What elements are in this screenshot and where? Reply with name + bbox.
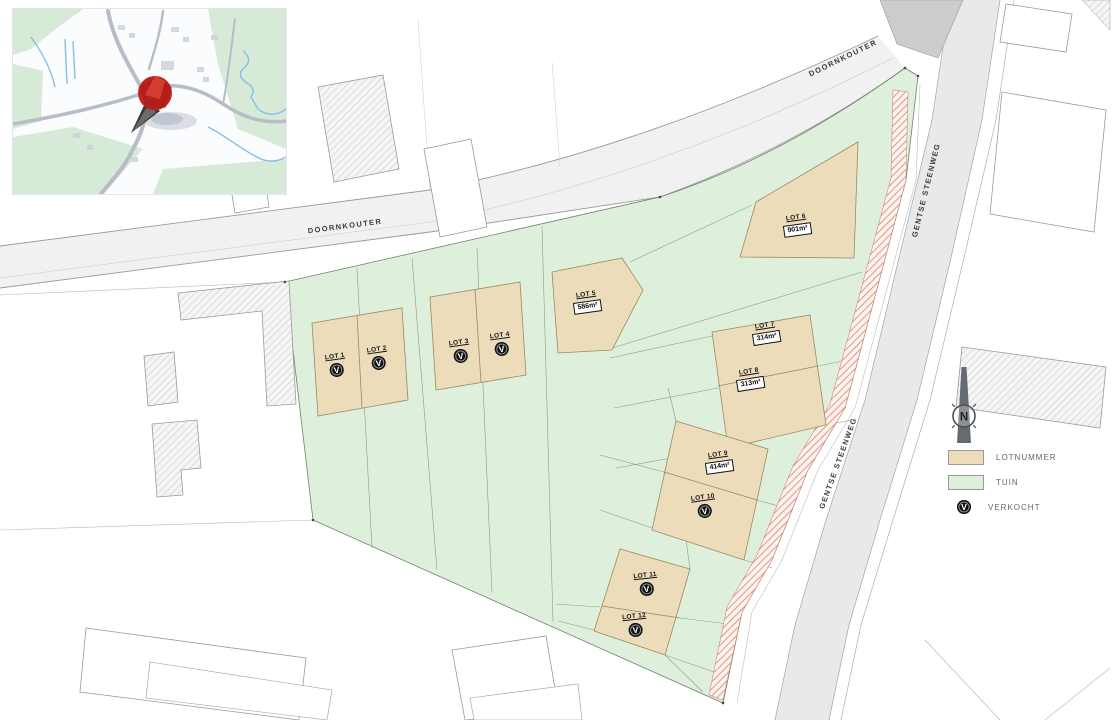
lot-5-label: LOT 5 586m² bbox=[571, 289, 602, 315]
lot-10-label: LOT 10 V bbox=[691, 492, 718, 519]
lot-name: LOT 11 bbox=[633, 571, 657, 580]
lot-1-label: LOT 1 V bbox=[324, 352, 347, 379]
pin-shadow bbox=[151, 113, 183, 125]
north-arrow: N bbox=[938, 363, 990, 451]
lot-name: LOT 7 bbox=[754, 321, 775, 331]
site-plan-drawing: DOORNKOUTER DOORNKOUTER GENTSE STEENWEG … bbox=[0, 0, 1112, 720]
verkocht-icon: V bbox=[639, 581, 654, 596]
lot-name: LOT 3 bbox=[448, 338, 469, 348]
verkocht-icon: V bbox=[329, 362, 345, 378]
legend: LOTNUMMER TUIN V VERKOCHT bbox=[948, 449, 1057, 515]
lot-7-label: LOT 7 314m² bbox=[750, 320, 781, 346]
verkocht-icon: V bbox=[628, 622, 643, 637]
lot-name: LOT 8 bbox=[738, 367, 759, 377]
legend-label: LOTNUMMER bbox=[996, 453, 1057, 462]
tuin-swatch bbox=[948, 475, 984, 490]
lotnummer-swatch bbox=[948, 450, 984, 465]
verkocht-icon: V bbox=[957, 500, 971, 514]
legend-row-tuin: TUIN bbox=[948, 474, 1057, 490]
north-letter: N bbox=[960, 412, 968, 424]
lot-name: LOT 6 bbox=[786, 213, 807, 223]
inset-map bbox=[12, 8, 287, 195]
legend-row-lotnummer: LOTNUMMER bbox=[948, 449, 1057, 465]
lot-6-label: LOT 6 901m² bbox=[781, 212, 812, 238]
lot-name: LOT 1 bbox=[324, 352, 345, 362]
legend-label: TUIN bbox=[996, 478, 1019, 487]
lot-name: LOT 12 bbox=[622, 612, 646, 621]
lot-3-label: LOT 3 V bbox=[448, 338, 471, 365]
lot-name: LOT 9 bbox=[708, 450, 729, 460]
lot-8-label: LOT 8 313m² bbox=[734, 366, 765, 392]
verkocht-icon: V bbox=[697, 503, 713, 519]
lot-name: LOT 2 bbox=[366, 345, 387, 355]
lot-4-label: LOT 4 V bbox=[489, 331, 512, 358]
verkocht-icon: V bbox=[494, 341, 510, 357]
lot-2-label: LOT 2 V bbox=[366, 345, 389, 372]
lot-name: LOT 5 bbox=[576, 290, 597, 300]
lot-11-label: LOT 11 V bbox=[633, 571, 659, 597]
legend-row-verkocht: V VERKOCHT bbox=[948, 499, 1057, 515]
lot-9-label: LOT 9 414m² bbox=[703, 449, 734, 475]
lot-name: LOT 4 bbox=[489, 331, 510, 341]
verkocht-icon: V bbox=[371, 355, 387, 371]
legend-label: VERKOCHT bbox=[988, 503, 1040, 512]
lot-12-label: LOT 12 V bbox=[622, 612, 648, 638]
verkocht-icon: V bbox=[453, 348, 469, 364]
